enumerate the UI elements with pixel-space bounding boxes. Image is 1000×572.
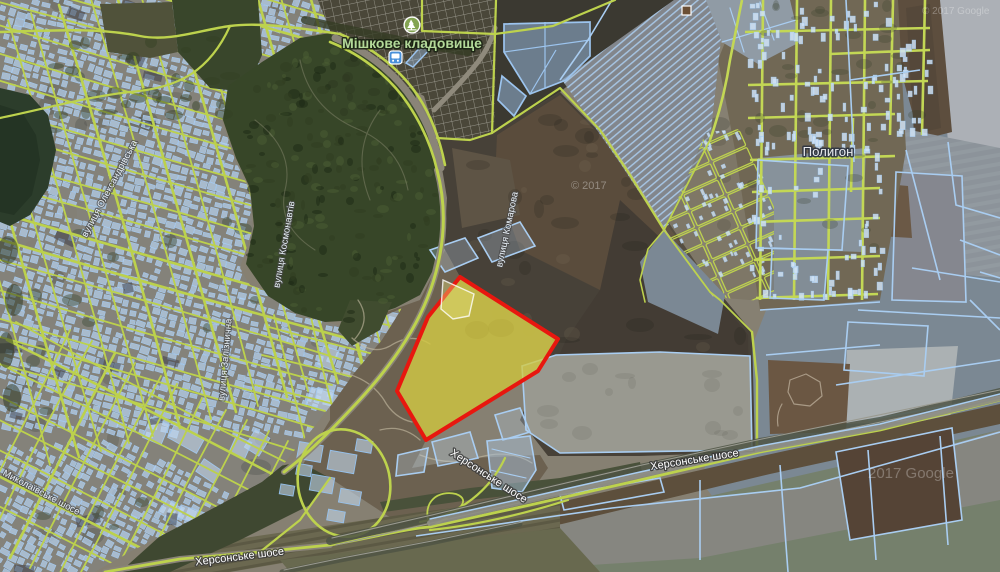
svg-text:Мішкове кладовище: Мішкове кладовище [342, 35, 482, 51]
svg-text:Полигон: Полигон [803, 144, 854, 159]
svg-text:© 2017 Google: © 2017 Google [922, 6, 990, 17]
svg-text:2017 Google: 2017 Google [868, 465, 954, 482]
svg-text:© 2017: © 2017 [571, 180, 607, 192]
